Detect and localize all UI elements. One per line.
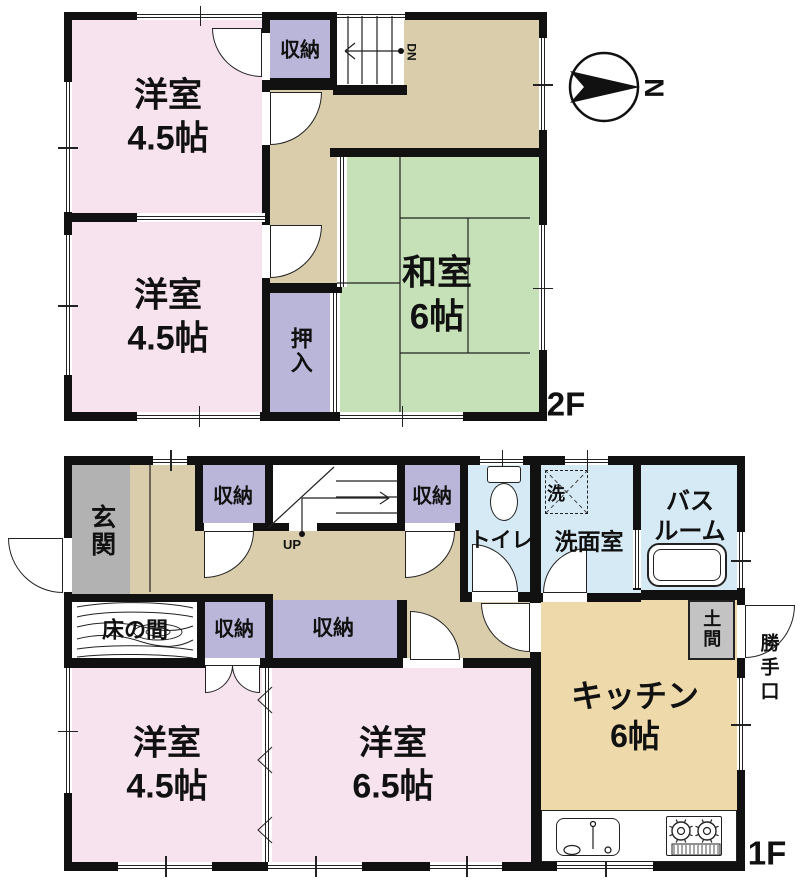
door-gap [262,33,270,80]
window [430,862,502,871]
wall [330,12,337,90]
window [337,12,405,20]
wall [197,600,205,662]
window-pane-line [635,530,636,588]
floor1-label: 1F [748,832,787,873]
closet1f-1-label: 収納 [213,485,253,510]
window [557,862,653,871]
wall [262,283,342,293]
window-tick [731,560,751,562]
door-gap [405,523,455,531]
door-gap [543,593,587,602]
room-fill-stairs2f [336,14,404,86]
wall [397,600,407,665]
toilet-tank [487,466,521,483]
window [539,38,547,130]
door-gap [530,603,541,652]
window-pane-line [343,157,344,287]
window [64,235,72,375]
wall [265,600,273,662]
north-label: N [636,78,670,98]
window-tick [58,731,78,733]
door-gap [472,592,518,602]
wall [641,590,745,600]
dn-label: DN [404,43,419,60]
tokonoma-label: 床の間 [102,616,168,644]
window [64,668,72,793]
stove [666,816,722,856]
window-pane-line [333,293,334,412]
window-tick [402,406,404,427]
bathtub-inner [653,549,721,581]
toilet-bowl [490,483,518,521]
window [137,412,260,421]
window-pane-line [340,157,341,287]
closet1f-4-label: 収納 [312,616,354,642]
sliding-door [137,213,265,222]
sliding-door [330,293,340,412]
toilet-label: トイレ [470,528,533,554]
window-tick [58,147,78,149]
window [137,12,262,20]
room-fill-stairs1f [265,465,400,529]
sliding-door [337,157,347,287]
window-tick [199,406,201,427]
wall [460,465,468,602]
front-door-swing [8,538,63,593]
room2f-2-label: 洋室 4.5帖 [127,275,208,360]
up-label: UP [283,537,301,553]
bathroom-label: バス ルーム [654,487,725,547]
wall [64,594,273,602]
compass-needle-icon [570,71,640,103]
window-pane-line [337,17,405,18]
window-pane-line [336,293,337,412]
window-tick [731,724,751,726]
washitsu-label: 和室 6帖 [402,251,472,339]
window-tick [587,450,589,471]
window-pane-line [268,668,269,862]
room1f-2-label: 洋室 6.5帖 [352,723,433,808]
genkan-label: 玄関 [85,504,116,558]
window-tick [58,305,78,307]
circle [570,53,638,121]
window [737,532,745,588]
door-gap [64,538,72,592]
floor2-label: 2F [547,383,586,424]
window-pane-line [638,530,639,588]
sliding-door [633,530,641,588]
door-gap [289,523,317,531]
wall [737,456,745,871]
window [64,82,72,212]
kitchen-label: キッチン 6帖 [571,676,699,756]
laundry-label: 洗 [547,483,565,506]
window [268,862,362,871]
window [737,678,745,770]
oshiire-label: 押入 [286,327,314,375]
window-tick [200,6,202,26]
closet2f-label: 収納 [280,39,320,64]
window [539,225,547,350]
room1f-1-label: 洋室 4.5帖 [126,723,207,808]
closet1f-3-label: 収納 [214,618,254,643]
window [153,456,187,465]
window-pane-line [137,216,265,217]
door-gap [737,605,745,658]
room2f-1-label: 洋室 4.5帖 [127,75,208,160]
wall [265,465,273,528]
wall [262,78,337,90]
window-pane-line [265,668,266,862]
door-gap [262,225,270,278]
window-pane-line [337,14,405,15]
window-tick [170,450,172,471]
wall [195,465,203,528]
sink [556,818,620,856]
door-gap [204,523,253,531]
door-gap [262,92,270,145]
wall [531,655,541,862]
washroom-label: 洗面室 [555,528,624,557]
window-tick [315,856,317,877]
wall [397,465,405,531]
window [118,862,212,871]
window-tick [533,288,553,290]
doma-label: 土間 [700,609,723,649]
window [565,456,608,465]
window-pane-line [137,219,265,220]
window-tick [466,856,468,877]
wall [333,85,407,95]
backdoor-label: 勝手口 [755,632,785,703]
closet1f-2-label: 収納 [412,485,452,510]
window [340,412,463,421]
window-tick [165,856,167,877]
sliding-door [262,668,272,862]
window-tick [533,84,553,86]
floor-plan: 洋室 4.5帖洋室 4.5帖収納押入和室 6帖2FDNN玄関収納収納UPトイレ洗… [0,0,800,887]
wall [330,148,539,157]
window [480,456,523,465]
